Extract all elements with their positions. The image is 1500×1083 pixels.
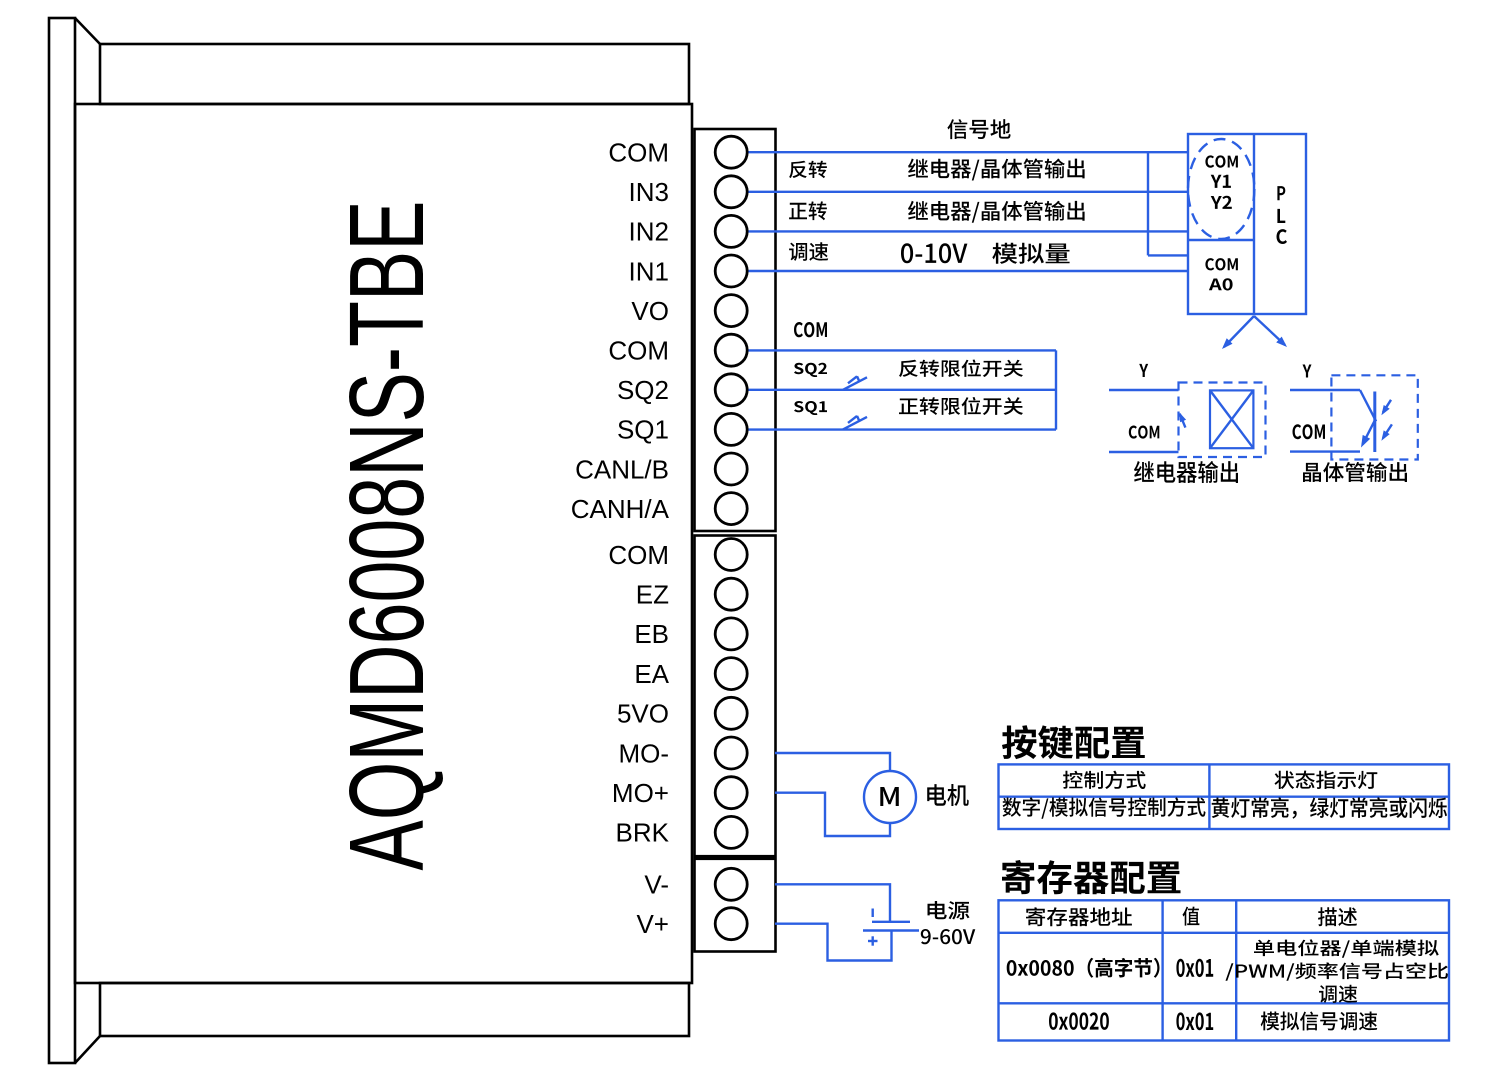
svg-text:VO: VO <box>631 296 669 326</box>
svg-text:CANL/B: CANL/B <box>575 454 669 484</box>
svg-text:EA: EA <box>634 659 669 689</box>
svg-text:IN2: IN2 <box>629 217 669 247</box>
svg-text:CANH/A: CANH/A <box>571 494 670 524</box>
svg-text:SQ1: SQ1 <box>617 415 669 445</box>
svg-text:MO+: MO+ <box>612 778 669 808</box>
svg-text:V+: V+ <box>636 909 669 939</box>
svg-text:5VO: 5VO <box>617 699 669 729</box>
svg-text:IN1: IN1 <box>629 256 669 286</box>
svg-text:BRK: BRK <box>616 818 670 848</box>
svg-text:MO-: MO- <box>618 738 669 768</box>
svg-text:COM: COM <box>608 138 669 168</box>
svg-text:EZ: EZ <box>636 580 669 610</box>
svg-text:IN3: IN3 <box>629 177 669 207</box>
svg-text:EB: EB <box>634 619 669 649</box>
svg-text:COM: COM <box>608 336 669 366</box>
svg-text:SQ2: SQ2 <box>617 375 669 405</box>
svg-text:COM: COM <box>608 540 669 570</box>
svg-text:AQMD6008NS-TBE: AQMD6008NS-TBE <box>328 200 446 870</box>
svg-text:V-: V- <box>644 870 669 900</box>
